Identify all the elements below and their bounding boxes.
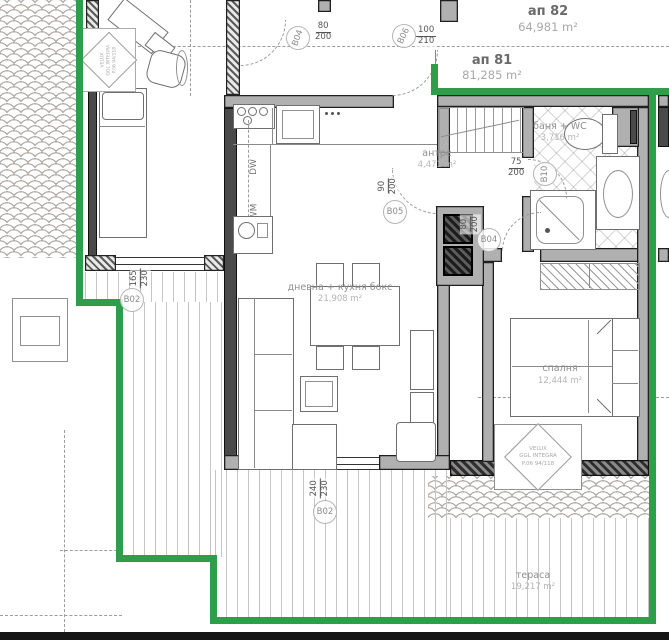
boundary-step-h2 [116,555,217,562]
nightstand-line [612,383,638,384]
pillow [102,92,144,120]
oven-door [282,110,314,139]
wall [437,95,649,107]
burner-icon [248,107,257,116]
sofa-chaise [292,424,337,470]
dim-b10: 75 200 [506,158,526,179]
wall [226,0,240,95]
dash-top-room-divider [190,0,191,96]
dim-b04-top: 80 200 [313,22,333,43]
bathroom-area: 3,716 m² [541,133,580,143]
wall [658,107,669,147]
wall [204,255,224,271]
bedroom-name: спалня [542,363,577,374]
sofa-cushion-line [254,354,292,355]
dash-bottom-left [0,615,122,616]
bath-sink-basin [603,170,633,218]
tag-label: B04 [481,235,498,245]
terrace-name: тераса [516,570,550,581]
terrace-decking-left [122,302,224,557]
boundary-top [431,88,669,95]
tag-b02-left: B02 [120,288,144,312]
roof-tiles-top-left [0,0,76,258]
desk-chair-back [176,50,188,86]
tag-b10: B10 [533,162,557,186]
wall [440,0,458,22]
velux-text: VELUX GGL INTEGRA P.06 94/118 [519,446,557,468]
tag-label: B04 [290,28,305,47]
dim-height: 230 [141,268,151,288]
dining-chair [316,346,344,370]
apt82-area: 64,981 m² [518,20,578,34]
boundary-left [76,0,83,305]
door-arc-b04-bedroom [502,212,541,251]
shaft-icon [443,246,473,276]
velux-roof-window-top: VELUX GGL INTEGRA P.06 94/118 [82,28,136,92]
tag-b04-bedroom: B04 [477,228,501,252]
wall [482,262,494,462]
wall [658,248,669,262]
velux-model: GGL INTEGRA [519,453,557,459]
living-area: 21,908 m² [318,294,362,304]
hallway-name: антре [422,148,451,159]
switch-dots-icon [337,112,340,115]
section-line-left [64,430,65,632]
tag-label: B02 [317,507,334,517]
wall [540,248,649,262]
terrace-decking-right [450,518,649,617]
dishwasher-label: DW [249,159,259,175]
neighbour-dormer-inner [20,316,60,346]
velux-text: VELUX GGL INTEGRA P.06 94/118 [100,45,118,76]
hallway-area: 4,471 m² [418,160,457,170]
wall [630,110,637,144]
tag-label: B02 [124,295,141,305]
velux-model: GGL INTEGRA [106,45,111,76]
dim-b02-left: 165 230 [130,268,151,288]
boundary-right [649,88,656,624]
bedroom-wardrobe [540,263,640,290]
bed-fold-icon [597,399,611,413]
nightstand-line [612,350,638,351]
sink-drainer [257,223,268,238]
wall [318,0,331,12]
toilet-tank [602,114,618,154]
dim-height: 200 [389,176,399,196]
bathroom-name: баня + WC [533,121,587,132]
switch-dots-icon [331,112,334,115]
dash-mid-left [60,550,122,551]
bed-headboard [612,318,640,417]
apt81-area: 81,285 m² [462,68,522,82]
tag-label: B05 [387,207,404,217]
apt81-label: ап 81 [472,53,512,68]
wall [658,95,669,107]
tag-label: B10 [540,166,550,183]
hall-wardrobe [438,107,524,153]
floor-plan: DW WM VELUX GGL INTEGRA P.06 94/118 [0,0,669,640]
dim-b05: 90 200 [378,176,399,196]
door-arc-b04-top [240,20,286,66]
bedroom-wardrobe-divider [589,263,590,288]
dim-b04-bedroom: 80 200 [460,214,481,234]
burner-icon [259,107,268,116]
tag-label: B06 [396,26,412,45]
image-bottom-border [0,632,669,640]
terrace-decking-left-arm [85,272,224,302]
coffee-table-inner [305,381,333,407]
tag-b04-top: B04 [283,23,314,54]
terrace-decking-main [215,470,450,617]
sofa [238,298,294,470]
bedroom-area: 12,444 m² [538,376,582,386]
velux-roof-window: VELUX GGL INTEGRA P.06 94/118 [494,424,582,490]
velux-brand: VELUX [100,53,105,68]
dim-height: 210 [416,37,436,47]
velux-brand: VELUX [529,446,547,452]
bed-fold-icon [597,320,611,334]
wall [224,108,237,458]
tv-unit [410,330,434,390]
sofa-back-line [254,298,255,468]
tag-b06: B06 [388,20,420,52]
dim-b06: 100 210 [416,26,436,47]
wall [88,90,97,258]
dim-height: 230 [321,478,331,498]
section-line-top [98,46,669,47]
apt82-label: ап 82 [528,4,568,19]
switch-dots-icon [325,112,328,115]
tag-b05: B05 [383,200,407,224]
boundary-left-bottom [210,555,217,624]
velux-size: P.06 94/118 [522,461,554,467]
counter-edge [272,108,273,145]
living-name: дневна + кухня бокс [288,282,393,293]
burner-icon [237,107,246,116]
tag-b02-terrace: B02 [313,500,337,524]
boundary-top-stub [431,64,438,90]
boundary-bottom [210,617,656,624]
sofa-cushion-line [254,410,292,411]
dim-height: 200 [313,33,333,43]
blanket-line [99,126,145,127]
armchair [396,422,436,462]
counter-edge [233,144,437,145]
terrace-area: 19,217 m² [511,582,555,592]
dim-height: 200 [506,169,526,179]
sink-bowl [238,222,255,239]
shower-drain [545,228,550,233]
velux-size: P.06 94/118 [112,47,117,73]
dining-chair [352,346,380,370]
wall [85,255,116,271]
boundary-left-lower [116,299,123,562]
neighbour-sink [660,170,669,218]
dim-b02-terrace: 240 230 [310,478,331,498]
